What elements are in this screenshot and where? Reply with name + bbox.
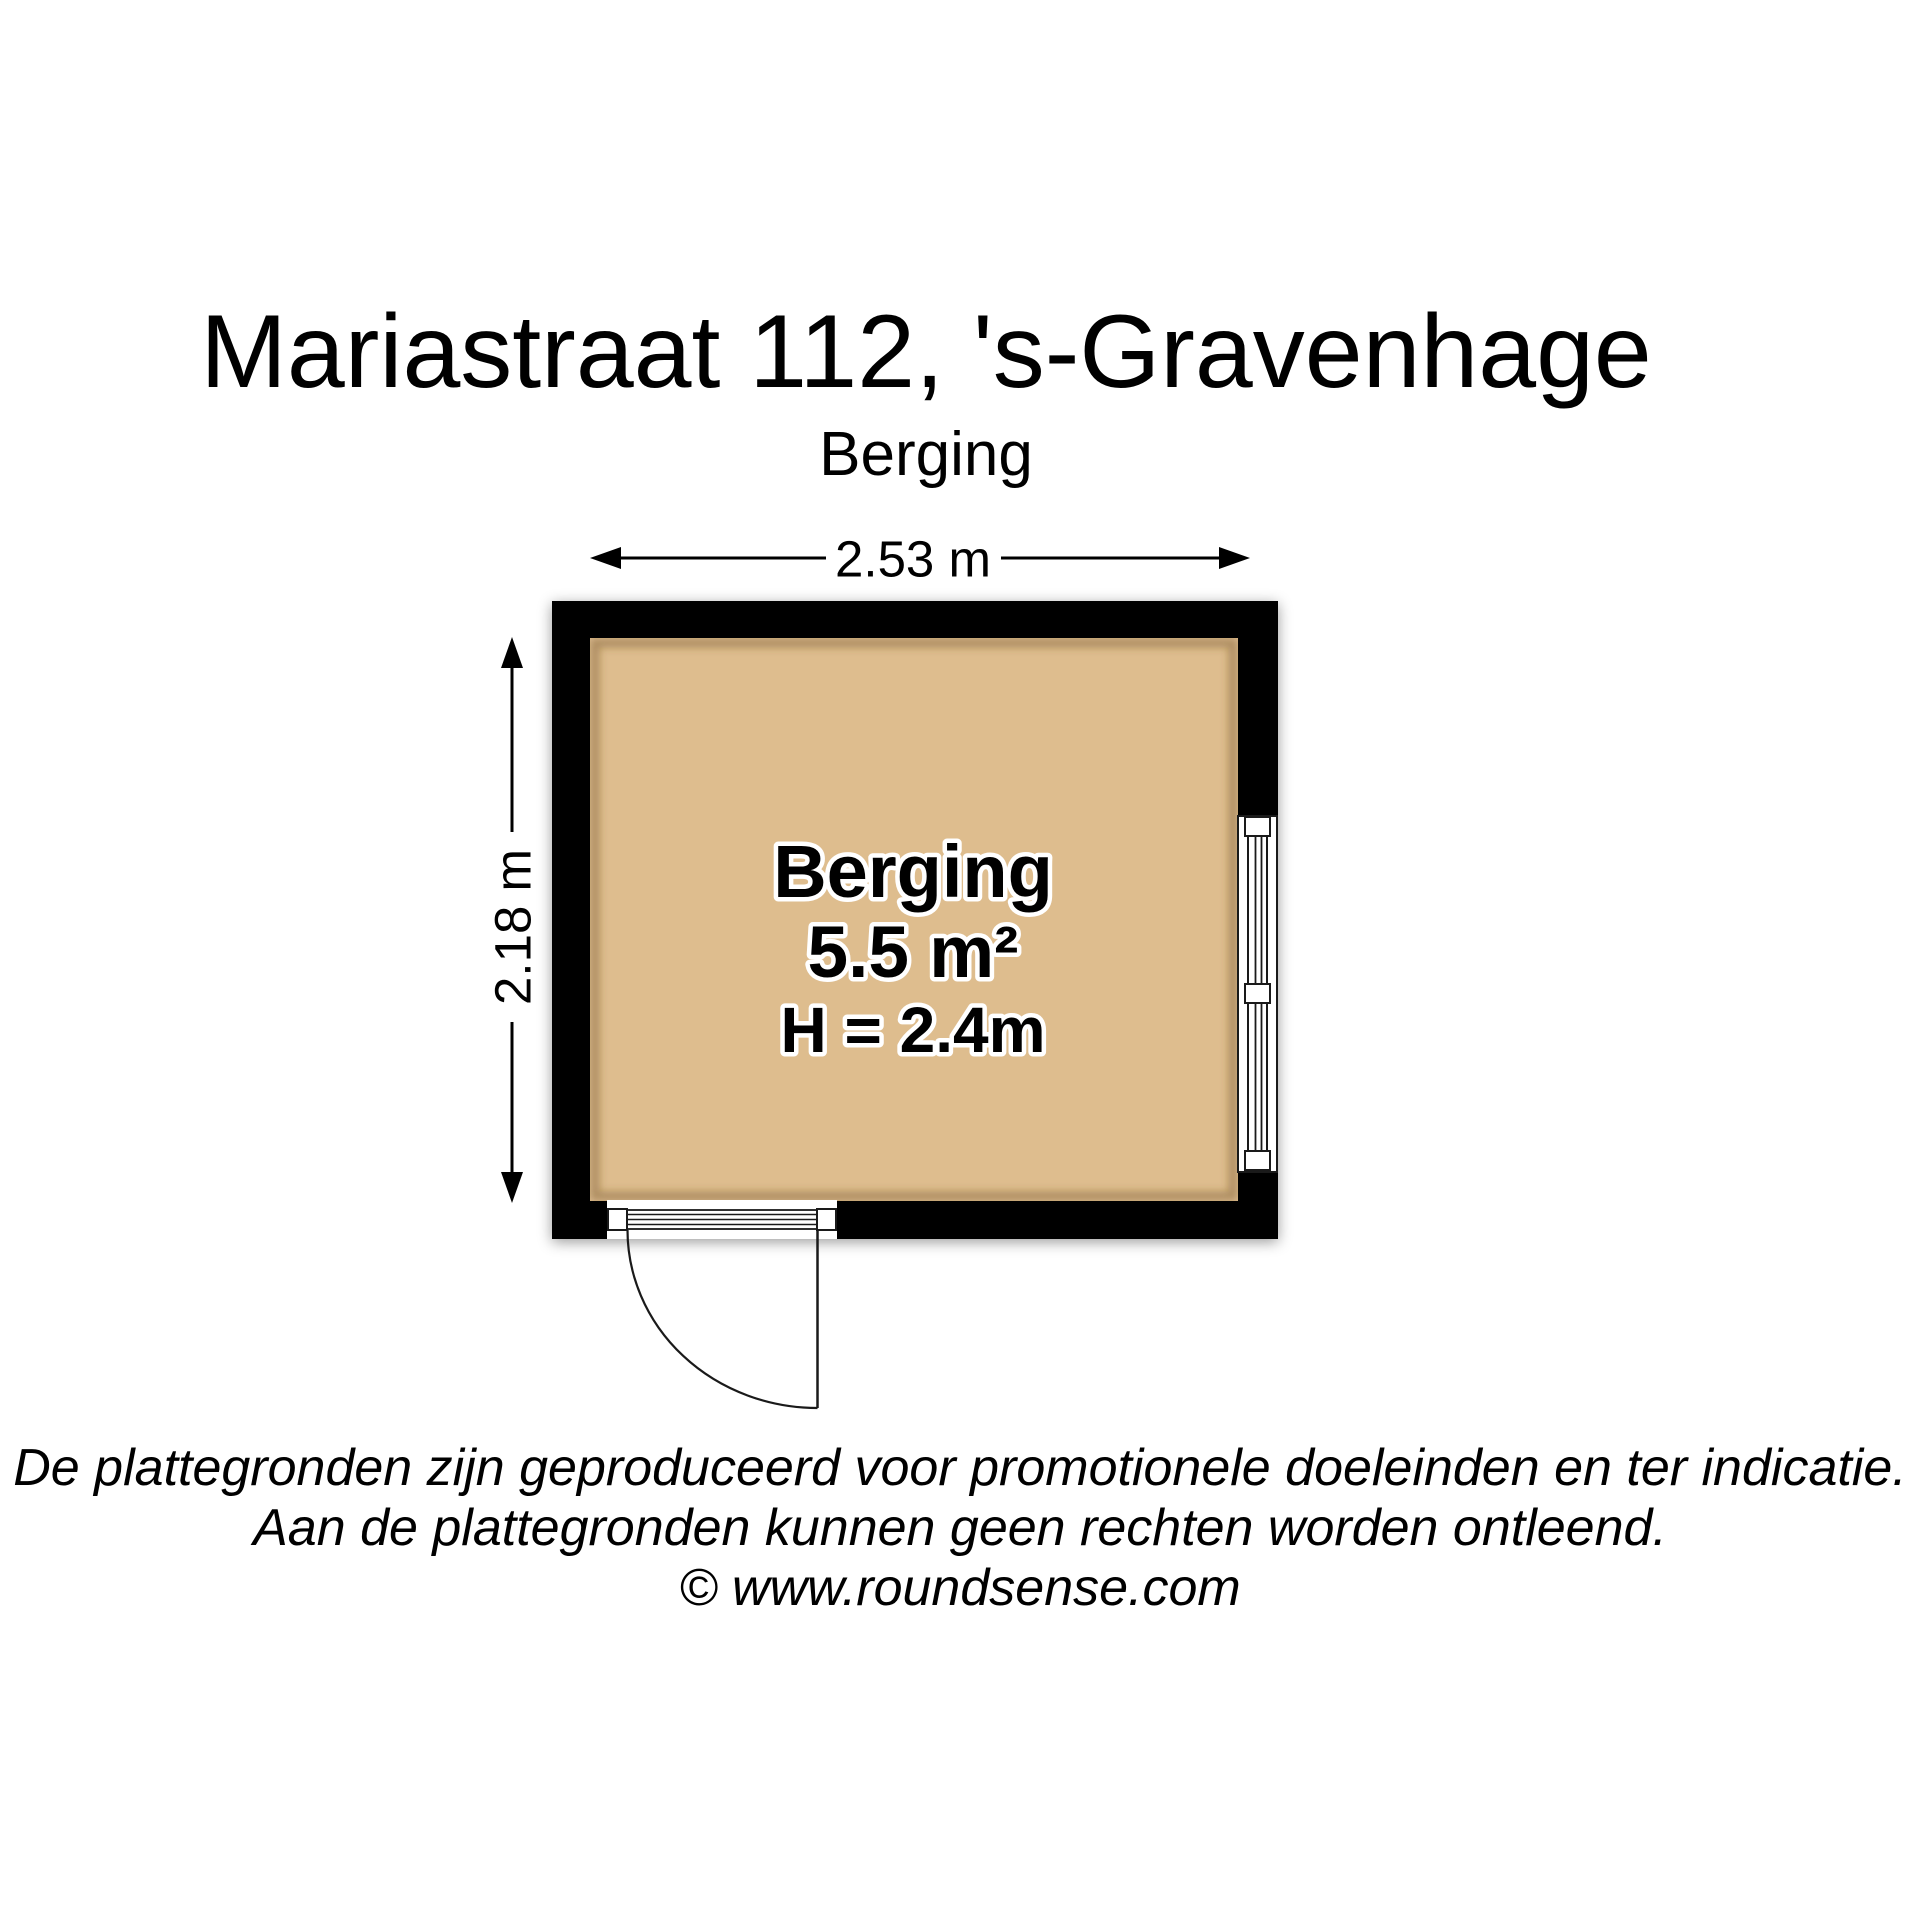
- copyright-line: © www.roundsense.com: [0, 1558, 1920, 1618]
- floorplan-drawing: 2.53 m 2.18 m Berging 5.5 m² H = 2.4m: [0, 0, 1920, 1920]
- width-dimension: 2.53 m: [590, 530, 1250, 587]
- door-jamb: [817, 1209, 836, 1230]
- door: [607, 1200, 837, 1408]
- floorplan-page: Mariastraat 112, 's-Gravenhage Berging: [0, 0, 1920, 1920]
- room-ceiling-height: H = 2.4m: [780, 994, 1045, 1066]
- width-dimension-label: 2.53 m: [835, 530, 991, 587]
- window: [1238, 816, 1277, 1172]
- room-area: 5.5 m²: [808, 912, 1019, 993]
- door-swing-arc: [628, 1230, 818, 1408]
- height-dimension-label: 2.18 m: [484, 849, 541, 1005]
- window-sash-block: [1245, 817, 1270, 836]
- door-jamb: [608, 1209, 627, 1230]
- disclaimer-line-1: De plattegronden zijn geproduceerd voor …: [0, 1438, 1920, 1498]
- room-name: Berging: [773, 830, 1053, 913]
- disclaimer-line-2: Aan de plattegronden kunnen geen rechten…: [0, 1498, 1920, 1558]
- window-sash-block: [1245, 984, 1270, 1003]
- window-sash-block: [1245, 1151, 1270, 1170]
- room-label: Berging 5.5 m² H = 2.4m: [773, 830, 1053, 1066]
- footer-disclaimer: De plattegronden zijn geproduceerd voor …: [0, 1438, 1920, 1618]
- height-dimension: 2.18 m: [484, 637, 541, 1203]
